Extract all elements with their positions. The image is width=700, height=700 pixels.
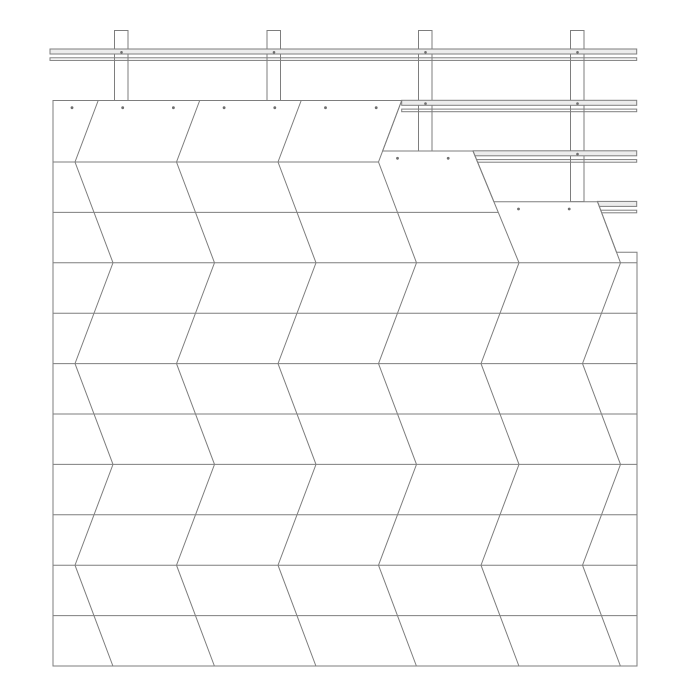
rail-upper-strip	[50, 49, 637, 54]
rail-screw-dot	[576, 102, 579, 105]
panel-fastener-dot	[71, 106, 74, 109]
rail-upper-strip	[473, 151, 637, 156]
panel-fastener-dot	[121, 106, 124, 109]
technical-drawing-page	[0, 0, 700, 700]
rail-screw-dot	[273, 51, 276, 54]
rail-upper-strip	[402, 100, 637, 105]
rail-screw-dot	[424, 102, 427, 105]
panel-fastener-dot	[568, 208, 571, 211]
panel-fastener-dot	[375, 106, 378, 109]
panel-fastener-dot	[324, 106, 327, 109]
panel-fastener-dot	[517, 208, 520, 211]
cladding-detail-drawing	[0, 0, 700, 700]
panel-fastener-dot	[273, 106, 276, 109]
panel-fastener-dot	[447, 157, 450, 160]
panel-fastener-dot	[223, 106, 226, 109]
rail-screw-dot	[576, 51, 579, 54]
rail-screw-dot	[576, 153, 579, 156]
panel-fastener-dot	[172, 106, 175, 109]
rail-screw-dot	[424, 51, 427, 54]
panel-fastener-dot	[396, 157, 399, 160]
rail-screw-dot	[120, 51, 123, 54]
rail-upper-strip	[597, 201, 636, 206]
